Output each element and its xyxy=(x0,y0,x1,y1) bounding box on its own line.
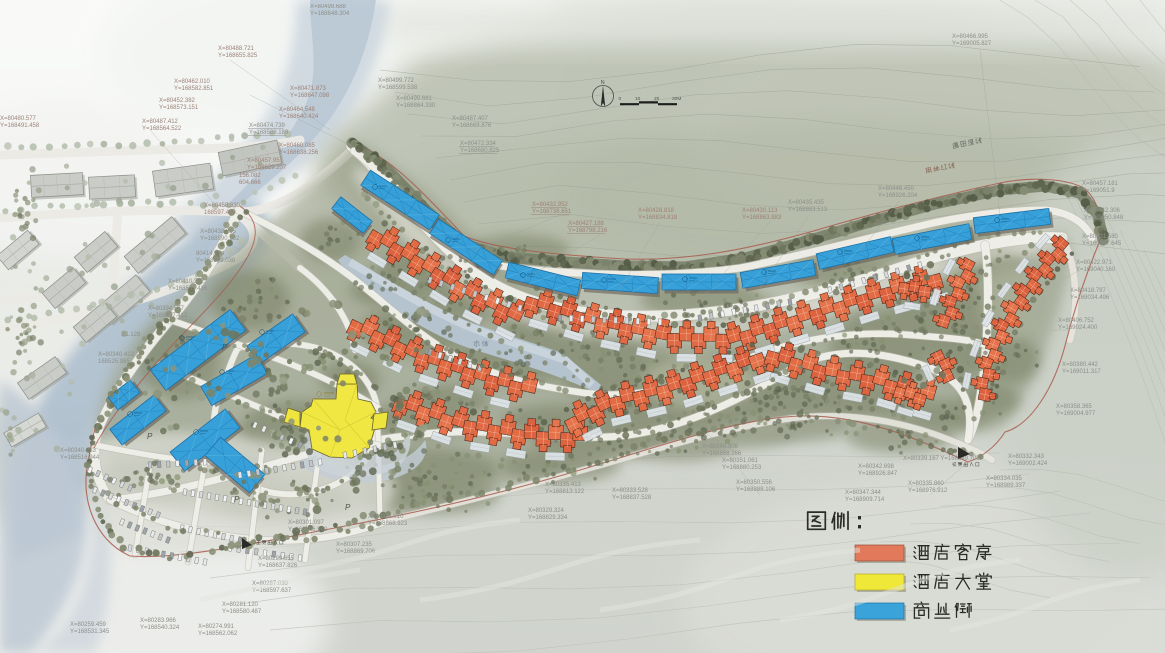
svg-text:X=80457.951: X=80457.951 xyxy=(247,158,284,164)
svg-text:P: P xyxy=(234,495,240,504)
svg-text:X=80430.113: X=80430.113 xyxy=(742,208,778,214)
svg-text:P: P xyxy=(222,343,228,352)
svg-text:X=80435.435: X=80435.435 xyxy=(788,200,825,206)
svg-text:Y=169004.977: Y=169004.977 xyxy=(1056,411,1096,417)
svg-text:X=80472.334: X=80472.334 xyxy=(460,141,497,147)
svg-text:X=80427.188: X=80427.188 xyxy=(568,221,605,227)
svg-text:X=80422.971: X=80422.971 xyxy=(1076,260,1113,266)
svg-text:Y=168883.513: Y=168883.513 xyxy=(788,207,828,213)
svg-text:Y=168813.122: Y=168813.122 xyxy=(545,489,585,495)
svg-text:X=80394.587: X=80394.587 xyxy=(148,306,185,312)
svg-text:Y=168531.345: Y=168531.345 xyxy=(70,629,110,635)
svg-text:X=80460.085: X=80460.085 xyxy=(279,143,316,149)
svg-text:Y=168562.062: Y=168562.062 xyxy=(198,631,238,637)
svg-text:X=80301.097: X=80301.097 xyxy=(288,520,325,526)
svg-text:168525.985: 168525.985 xyxy=(98,359,130,365)
svg-text:Y=168669.876: Y=168669.876 xyxy=(452,123,492,129)
svg-text:Y=168573.151: Y=168573.151 xyxy=(159,105,199,111)
svg-text:X=80499.772: X=80499.772 xyxy=(378,78,415,84)
svg-text:Y=169034.496: Y=169034.496 xyxy=(1070,295,1110,301)
svg-text:Y=169011.317: Y=169011.317 xyxy=(1062,369,1101,375)
svg-text:Y=168638.256: Y=168638.256 xyxy=(279,150,319,156)
svg-text:X=80307.235: X=80307.235 xyxy=(336,542,373,548)
svg-text:Y=168829.334: Y=168829.334 xyxy=(528,515,568,521)
svg-text:Y=168796.592: Y=168796.592 xyxy=(288,527,328,533)
svg-text:156.082: 156.082 xyxy=(239,173,261,179)
svg-text:X=80334.035: X=80334.035 xyxy=(986,476,1023,482)
svg-text:Y=168555.416: Y=168555.416 xyxy=(168,286,208,292)
svg-text:X=80259.459: X=80259.459 xyxy=(70,622,107,628)
svg-text:Y=169005.827: Y=169005.827 xyxy=(952,41,992,47)
svg-text:X=80329.324: X=80329.324 xyxy=(528,508,565,514)
svg-text:Y=168516.944: Y=168516.944 xyxy=(60,455,100,461)
svg-text:X=80283.966: X=80283.966 xyxy=(140,618,177,624)
svg-text:Y=168580.487: Y=168580.487 xyxy=(222,609,262,615)
svg-text:Y=168557.412: Y=168557.412 xyxy=(148,313,188,319)
svg-text:0: 0 xyxy=(619,96,622,102)
svg-text:Y=168880.253: Y=168880.253 xyxy=(722,465,762,471)
svg-text:X=80488.721: X=80488.721 xyxy=(218,46,255,52)
svg-text:Y=169051.9: Y=169051.9 xyxy=(1082,188,1115,194)
svg-text:Y=169047.645: Y=169047.645 xyxy=(1082,241,1122,247)
svg-text:X=80438.285: X=80438.285 xyxy=(200,229,237,235)
svg-text:Y=168637.826: Y=168637.826 xyxy=(258,563,298,569)
svg-text:X=80350.556: X=80350.556 xyxy=(736,480,773,486)
svg-text:Y=168868.923: Y=168868.923 xyxy=(368,521,408,527)
svg-text:Y=168655.825: Y=168655.825 xyxy=(218,53,258,59)
svg-text:Y=168590.292: Y=168590.292 xyxy=(200,236,240,242)
svg-text:168597.450: 168597.450 xyxy=(204,210,236,216)
svg-text:X=80431.580: X=80431.580 xyxy=(1082,234,1119,240)
svg-text:X=80340.283: X=80340.283 xyxy=(60,448,97,454)
svg-text:X=80487.412: X=80487.412 xyxy=(142,119,179,125)
svg-text:X=80487.407: X=80487.407 xyxy=(452,116,489,122)
svg-text:X=80442.306: X=80442.306 xyxy=(1084,208,1121,214)
svg-text:X=80380.442: X=80380.442 xyxy=(1062,362,1099,368)
svg-text:X=80342.698: X=80342.698 xyxy=(858,464,895,470)
svg-text:X=80358.365: X=80358.365 xyxy=(1056,404,1093,410)
svg-text:Y=168834.818: Y=168834.818 xyxy=(638,215,678,221)
svg-text:X=80340.413: X=80340.413 xyxy=(98,352,135,358)
svg-text:Y=168926.204: Y=168926.204 xyxy=(878,193,918,199)
svg-text:Y=168582.851: Y=168582.851 xyxy=(174,86,214,92)
svg-text:Y=168579.038: Y=168579.038 xyxy=(196,258,236,264)
svg-text:X=80332.343: X=80332.343 xyxy=(1008,454,1045,460)
svg-text:X=80432.952: X=80432.952 xyxy=(532,202,569,208)
svg-text:X=80339.167 Y=168949.703: X=80339.167 Y=168949.703 xyxy=(903,456,980,462)
svg-text:X=80471.873: X=80471.873 xyxy=(290,86,327,92)
svg-text:Y=168909.714: Y=168909.714 xyxy=(845,497,885,503)
svg-text:X=80428.818: X=80428.818 xyxy=(638,208,675,214)
svg-text:Y=169040.160: Y=169040.160 xyxy=(1076,267,1116,273)
svg-text:X=80410.302: X=80410.302 xyxy=(168,279,205,285)
svg-text:X=80311.010: X=80311.010 xyxy=(368,514,404,520)
svg-text:10: 10 xyxy=(635,96,641,102)
svg-text:X=80418.787: X=80418.787 xyxy=(1070,288,1107,294)
svg-text:Y=168629.207: Y=168629.207 xyxy=(247,165,287,171)
svg-text:Y=168837.528: Y=168837.528 xyxy=(612,495,652,501)
svg-text:Y=168863.883: Y=168863.883 xyxy=(742,215,782,221)
svg-text:Y=168864.330: Y=168864.330 xyxy=(396,103,436,109)
svg-text:Y=168599.538: Y=168599.538 xyxy=(378,85,418,91)
svg-text:X=80450.330: X=80450.330 xyxy=(204,203,241,209)
svg-text:604.666: 604.666 xyxy=(239,180,261,186)
svg-text:X=80406.752: X=80406.752 xyxy=(1058,318,1095,324)
svg-text:X=80466.995: X=80466.995 xyxy=(952,34,989,40)
svg-text:X=80351.061: X=80351.061 xyxy=(722,458,759,464)
svg-text:N: N xyxy=(601,80,605,86)
svg-text:X=80457.181: X=80457.181 xyxy=(1082,181,1119,187)
svg-text:X=80335.413: X=80335.413 xyxy=(545,482,582,488)
svg-text:X=80499.681: X=80499.681 xyxy=(396,96,433,102)
svg-text:X=80347.344: X=80347.344 xyxy=(845,490,882,496)
svg-text:X=80335.860: X=80335.860 xyxy=(908,481,945,487)
svg-text:80414.954: 80414.954 xyxy=(196,251,225,257)
svg-text:X=80446.450: X=80446.450 xyxy=(878,186,915,192)
svg-text:20: 20 xyxy=(654,96,660,102)
svg-text:Y=169002.424: Y=169002.424 xyxy=(1008,461,1048,467)
svg-text:31.128: 31.128 xyxy=(122,332,141,338)
svg-text:30M: 30M xyxy=(672,96,681,102)
svg-text:X=80474.739: X=80474.739 xyxy=(249,123,286,129)
svg-text:X=80452.382: X=80452.382 xyxy=(159,98,196,104)
svg-text:X=80349.908: X=80349.908 xyxy=(702,444,739,450)
svg-text:X=80281.120: X=80281.120 xyxy=(222,602,259,608)
svg-text:X=80480.577: X=80480.577 xyxy=(0,116,37,122)
svg-text:P: P xyxy=(147,432,153,441)
svg-text:X=80462.010: X=80462.010 xyxy=(174,79,211,85)
svg-text:X=80333.528: X=80333.528 xyxy=(612,488,649,494)
svg-text:Y=169024.400: Y=169024.400 xyxy=(1058,325,1098,331)
svg-text:Y=168648.304: Y=168648.304 xyxy=(310,11,350,17)
svg-text:X=80499.688: X=80499.688 xyxy=(310,4,347,10)
svg-text:Y=168926.847: Y=168926.847 xyxy=(858,471,898,477)
svg-text:P: P xyxy=(345,503,351,512)
svg-text:Y=168491.458: Y=168491.458 xyxy=(0,123,40,129)
svg-text:Y=168564.522: Y=168564.522 xyxy=(142,126,182,132)
svg-text:Y=168540.324: Y=168540.324 xyxy=(140,625,180,631)
svg-text:X=80274.991: X=80274.991 xyxy=(198,624,235,630)
svg-text:X=80299.655: X=80299.655 xyxy=(258,556,295,562)
svg-text:Y=169050.848: Y=169050.848 xyxy=(1084,215,1124,221)
svg-text:Y=168976.912: Y=168976.912 xyxy=(908,488,948,494)
svg-text:Y=168989.337: Y=168989.337 xyxy=(986,483,1026,489)
svg-text:Y=168647.098: Y=168647.098 xyxy=(290,93,330,99)
svg-text:Y=168868.266: Y=168868.266 xyxy=(702,451,742,457)
